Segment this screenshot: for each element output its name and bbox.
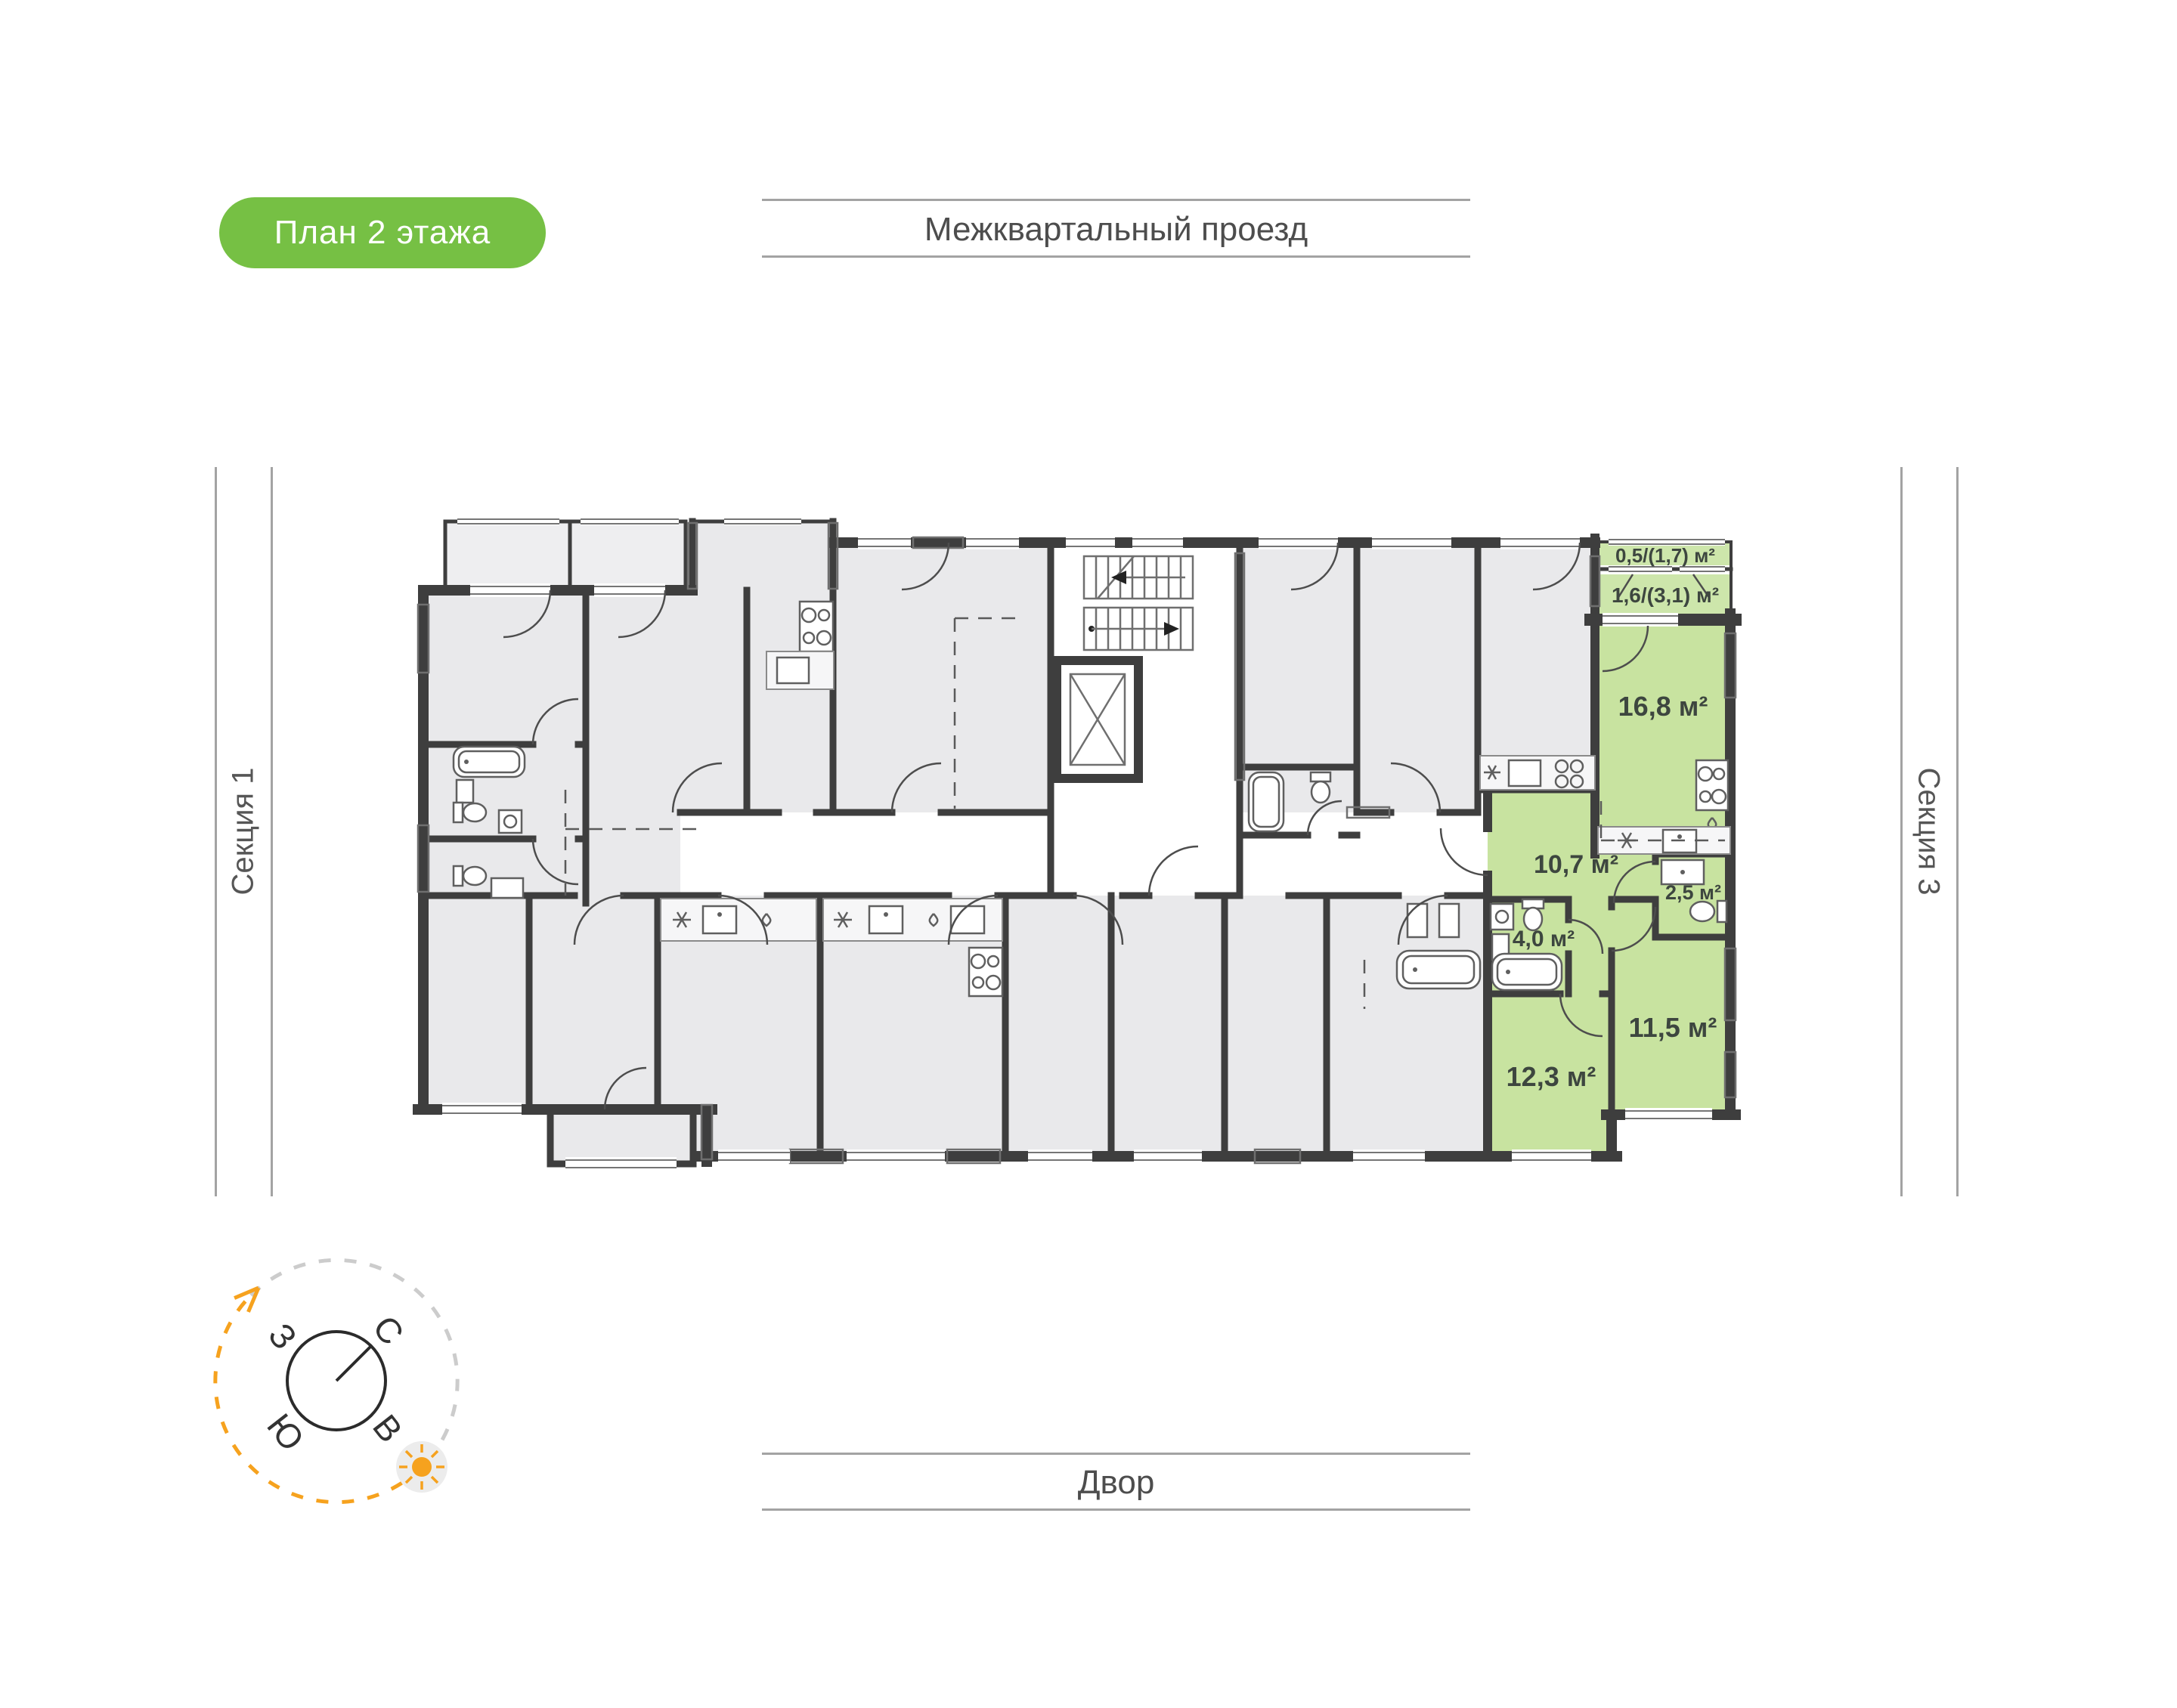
- sink-icon: [1509, 760, 1541, 786]
- sink-icon: [1439, 904, 1459, 937]
- floor-plan-svg: 0,5/(1,7) м² 1,6/(3,1) м² 16,8 м² 10,7 м…: [0, 0, 2177, 1708]
- wc-area-label: 2,5 м²: [1665, 881, 1721, 904]
- balcony-area-label: 0,5/(1,7) м²: [1615, 544, 1715, 567]
- sink-icon: [1407, 904, 1427, 937]
- sun-icon: [396, 1441, 447, 1493]
- kitchen-living-area-label: 16,8 м²: [1618, 691, 1708, 722]
- stove-icon: [969, 948, 1002, 996]
- sink-icon: [869, 906, 903, 933]
- bathtub-icon: [1397, 951, 1480, 989]
- stove-icon: [800, 602, 833, 651]
- bathroom-area-label: 4,0 м²: [1513, 927, 1575, 951]
- toilet-icon: [454, 803, 486, 822]
- toilet-icon: [1522, 899, 1544, 930]
- toilet-icon: [1311, 772, 1330, 803]
- sink-icon: [777, 658, 809, 683]
- bedroom1-area-label: 12,3 м²: [1507, 1061, 1596, 1092]
- loggia-area-label: 1,6/(3,1) м²: [1612, 583, 1719, 607]
- sink-icon: [457, 780, 473, 803]
- sink-icon: [703, 906, 736, 933]
- toilet-icon: [1690, 901, 1726, 922]
- sink-icon: [491, 878, 523, 898]
- bathtub-icon: [454, 747, 525, 777]
- toilet-icon: [454, 866, 486, 886]
- hallway-area-label: 10,7 м²: [1534, 850, 1618, 879]
- washer-icon: [1491, 904, 1513, 930]
- compass: З С Ю В: [215, 1260, 457, 1502]
- bathtub-icon: [1249, 772, 1284, 831]
- bathtub-icon: [1492, 954, 1562, 990]
- washer-icon: [499, 810, 522, 833]
- stove-icon: [1696, 760, 1728, 810]
- bedroom2-area-label: 11,5 м²: [1629, 1012, 1717, 1043]
